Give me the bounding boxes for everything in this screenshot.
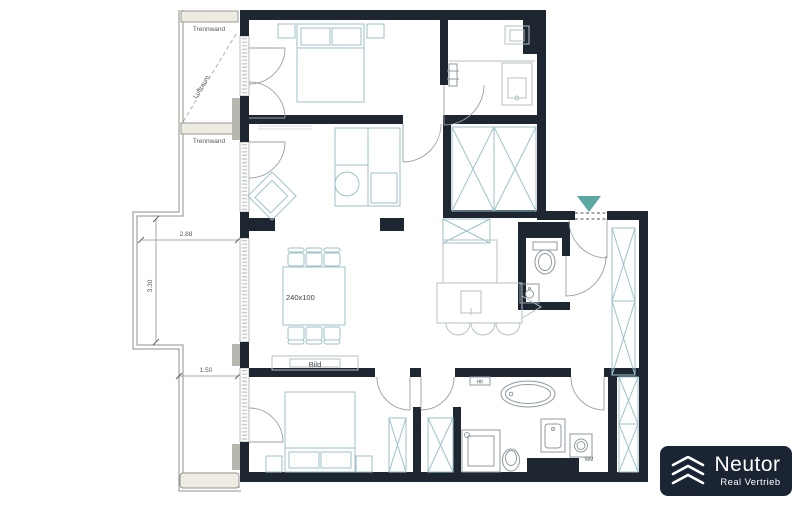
hall-closet <box>619 377 638 472</box>
vanity-sink <box>541 419 565 452</box>
nightstand <box>367 24 384 38</box>
nightstand <box>356 456 372 472</box>
wardrobe <box>494 127 536 211</box>
wardrobe <box>428 418 453 472</box>
tall-cabinet <box>443 219 490 243</box>
logo-text: Neutor Real Vertrieb <box>714 454 780 488</box>
wardrobe <box>389 418 406 472</box>
double-bed <box>285 392 355 472</box>
radiator-label: HK <box>477 380 485 386</box>
dim-lower-label: 1.50 <box>200 367 213 374</box>
toilet <box>533 242 557 274</box>
wall-stub-left <box>249 218 275 231</box>
nightstand <box>266 456 282 472</box>
doors <box>249 48 607 442</box>
dimensions: 2.88 3.30 1.50 <box>138 216 241 379</box>
dressing-room <box>452 127 536 211</box>
chair <box>324 327 340 344</box>
kitchen-sink <box>461 291 481 315</box>
bar-stool <box>446 323 470 335</box>
dim-width-label: 2.88 <box>180 231 193 238</box>
radiator-icon <box>447 64 459 86</box>
chair <box>306 248 322 266</box>
airspace-label: Luftraum <box>192 74 212 99</box>
floor-plan-canvas: Trennwand Trennwand Luftraum 2.88 3.30 1… <box>0 0 800 502</box>
entrance <box>575 196 607 219</box>
bathtub <box>501 381 555 407</box>
dim-depth-label: 3.30 <box>147 279 154 292</box>
shower-tray <box>502 63 532 105</box>
sideboard-label: Bild <box>309 360 322 369</box>
neutor-logo: Neutor Real Vertrieb <box>660 446 792 496</box>
bar-stool <box>471 323 495 335</box>
dining-table-label: 240x100 <box>286 293 315 302</box>
logo-title: Neutor <box>714 454 780 475</box>
kitchen-counter <box>443 240 497 283</box>
sofa <box>335 128 400 206</box>
partition-top-label: Trennwand <box>193 26 226 33</box>
chair <box>306 327 322 344</box>
walls <box>232 10 648 482</box>
balcony-partition-top-bar <box>181 11 238 22</box>
kitchen-island <box>437 283 522 323</box>
side-table <box>335 172 359 196</box>
washing-machine-label: WM <box>585 457 594 463</box>
chair <box>288 327 304 344</box>
nightstand <box>278 24 295 38</box>
logo-subtitle: Real Vertrieb <box>720 477 780 488</box>
wardrobe <box>452 127 494 211</box>
armchair <box>248 172 296 220</box>
entrance-marker-icon <box>577 196 601 212</box>
balcony-partition-mid-bar <box>181 123 238 134</box>
bedroom-1 <box>278 24 384 102</box>
dining-set: 240x100 <box>283 248 345 344</box>
shower <box>462 430 500 472</box>
bar-stool <box>496 323 520 335</box>
sideboard: Bild <box>272 356 358 370</box>
radiator: HK <box>470 377 490 386</box>
bedroom-2 <box>266 392 453 472</box>
double-bed <box>297 24 364 102</box>
wall-stub-center <box>380 218 404 231</box>
hall-wardrobe <box>612 228 635 375</box>
shower-bathroom <box>447 26 535 105</box>
floor-plan: Trennwand Trennwand Luftraum 2.88 3.30 1… <box>0 0 800 502</box>
chair <box>288 248 304 266</box>
living-room: 240x100 Bild <box>248 126 400 370</box>
balcony-bench <box>180 473 239 488</box>
balcony: Trennwand Trennwand Luftraum <box>133 10 241 491</box>
roof-chevrons-icon <box>671 456 705 486</box>
partition-mid-label: Trennwand <box>193 138 226 145</box>
chair <box>324 248 340 266</box>
toilet <box>503 449 520 471</box>
